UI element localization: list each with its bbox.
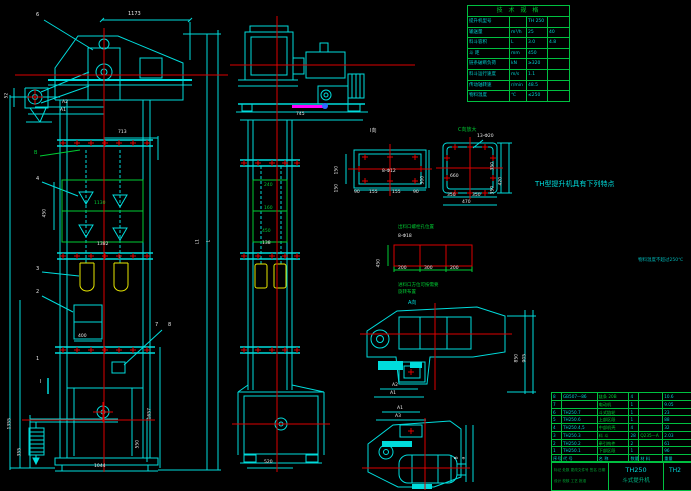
bom-code: TH250.7 [562,409,598,416]
bom-header: 序号 [552,455,562,462]
bom-code: TH250.1 [562,447,598,454]
hole-callout: 8-Φ12 [382,170,396,175]
bom-row: 5 TH250.6 上部区段 1 88 [552,416,691,424]
bom-code: TH250.4,5 [562,424,598,431]
drawing-number: TH2 [669,467,681,474]
bom-qty: 4 [629,424,639,431]
dim-label: 450 [378,259,383,268]
bom-qty: 2 [629,440,639,447]
bom-material [639,401,663,408]
bom-name: 链条 20B [598,393,630,400]
dim-label: 90 [354,191,360,196]
spec-value: 3.0 [527,38,548,48]
bom-item-no: 8 [552,393,562,400]
dim-label: A3 [395,415,401,420]
dim-label: 155 [369,191,378,196]
dim-label: B [456,456,461,459]
bom-item-no: 3 [552,432,562,439]
bom-name: 下部区段 [598,447,630,454]
bom-qty: 1 [629,416,639,423]
bom-name: 电动机 [598,401,630,408]
bom-header: 名 称 [598,455,630,462]
dim-label: 450 [262,230,271,235]
spec-value: ≥320 [527,59,548,69]
spec-param: 链条破断负荷 [468,59,510,69]
aview-note: 进料口方位可按需要 [398,284,439,289]
spec-value [548,17,569,27]
dim-label: 660 [450,175,459,180]
dim-label: 450 [44,209,49,218]
dim-label: 200 [450,267,459,272]
spec-value: ≤250 [527,91,548,102]
cad-sheet: 1173 6 52 A2 A1 B 4 713 450 1130 1382 3 … [0,0,691,491]
signature-row: 设计 校核 工艺 批准 [554,479,586,484]
dim-label: L1 [197,239,202,244]
bom-code: TH250.3 [562,432,598,439]
bom-weight: 88 [663,416,691,423]
bom-weight: 96 [663,447,691,454]
hole-callout: 8-Φ18 [398,235,412,240]
spec-row: 物料温度 ℃ ≤250 [468,91,569,102]
bom-weight: 61 [663,440,691,447]
spec-row: 提升机型号 TH 250 [468,17,569,28]
dim-label: 355 [19,448,24,457]
bom-name: 中部机壳 [598,424,630,431]
dim-label: 240 [264,184,273,189]
bom-name: 牵引构件 [598,440,630,447]
signature-grid: 标记 处数 更改文件号 签名 日期 设计 校核 工艺 批准 [552,463,609,490]
dim-label: 1044 [94,465,105,470]
spec-value [548,70,569,80]
spec-unit: mm [510,49,527,59]
spec-table: 技 术 规 格 提升机型号 TH 250 输送量 m³/h 25 40 料斗容积… [467,5,570,102]
spec-value: 450 [527,49,548,59]
spec-row: 料斗容积 L 3.0 4.8 [468,38,569,49]
spec-param: 提升机型号 [468,17,510,27]
dim-label: 155 [392,191,401,196]
spec-row: 传动轴转速 r/min 48.5 [468,81,569,92]
spec-value [548,59,569,69]
dim-label: 1657 [149,408,154,419]
balloon-4: 4 [36,177,39,182]
bom-item-no: 7 [552,401,562,408]
bom-material [639,393,663,400]
bom-header: 代 号 [562,455,598,462]
spec-row: 链条破断负荷 kN ≥320 [468,59,569,70]
bom-item-no: 5 [552,416,562,423]
bom-qty: 1 [629,409,639,416]
yellow-buckets [80,263,286,291]
dim-label: 160 [264,207,273,212]
spec-unit: kN [510,59,527,69]
outlet-detail-title: 出料口螺栓孔位置 [398,226,434,231]
dim-label: a [463,457,468,460]
spec-table-title: 技 术 规 格 [468,6,569,17]
spec-unit: L [510,38,527,48]
bom-header: 数量 [629,455,639,462]
balloon-7: 7 [155,323,158,328]
spec-value [548,81,569,91]
bom-material [639,447,663,454]
dim-label: 150 [336,166,341,175]
dim-label: 1382 [97,243,108,248]
signature-row: 标记 处数 更改文件号 签名 日期 [554,468,605,473]
aview-note: 旋转布置 [398,291,416,296]
bom-item-no: 6 [552,409,562,416]
dim-label: L [208,240,213,243]
spec-row: 斗 距 mm 450 [468,49,569,60]
dim-label: 350 [472,194,481,199]
spec-row: 输送量 m³/h 25 40 [468,28,569,39]
dim-label: 300 [424,267,433,272]
bom-weight: 32 [663,424,691,431]
dim-label: 850 [516,354,521,363]
bom-material [639,409,663,416]
bom-row: 3 TH250.3 料 斗 28 Q235—A 2.03 [552,432,691,440]
dim-label: A2 [62,101,68,106]
bom-header-row: 序号 代 号 名 称 数量 材 料 重量 [552,455,691,462]
dim-label: 300 [422,176,427,185]
spec-value [548,91,569,102]
spec-value: 25 [527,28,548,38]
bom-code: TH250.6 [562,416,598,423]
dim-label: A1 [60,109,66,114]
spec-unit: ℃ [510,91,527,102]
spec-value: 1.1 [527,70,548,80]
balloon-3: 3 [36,267,39,272]
bom-item-no: 2 [552,440,562,447]
bom-row: 7 电动机 1 9.05 [552,401,691,409]
dim-label: 520 [264,461,273,466]
bom-rows: 8 GB507—86 链条 20B 4 10.6 7 电动机 1 9.05 6 … [552,393,691,455]
drawing-name: 斗式提升机 [609,476,663,484]
dim-label: 150 [336,184,341,193]
dim-label: 90 [413,191,419,196]
bom-row: 4 TH250.4,5 中部机壳 4 32 [552,424,691,432]
bom-weight: 23 [663,409,691,416]
dim-label: 1355 [9,418,14,429]
hole-callout: 13-Φ20 [477,135,494,140]
cyan-linework [10,18,536,487]
model-number: TH250 [609,466,663,474]
bom-qty: 28 [629,432,639,439]
dim-label: 713 [118,131,127,136]
view-label-A: A向 [408,301,416,306]
bom-weight: 2.03 [663,432,691,439]
bom-code: GB507—86 [562,393,598,400]
balloon-1: 1 [36,357,39,362]
bom-qty: 1 [629,447,639,454]
spec-unit: m³/h [510,28,527,38]
balloon-6: 6 [36,13,39,18]
spec-unit: m/s [510,70,527,80]
dim-label: 52 [6,93,11,99]
bom-item-no: 4 [552,424,562,431]
dim-label: H(提升高度) [0,233,1,258]
section-marker: I [40,380,41,385]
dim-label: 420 [500,177,505,186]
spec-value: 48.5 [527,81,548,91]
dim-label: 1130 [94,202,105,207]
dim-label: 138 [262,242,271,247]
bom-row: 2 TH250.2 牵引构件 2 61 [552,440,691,448]
dim-label: 350 [492,162,497,171]
spec-param: 料斗容积 [468,38,510,48]
spec-value: 40 [548,28,569,38]
bom-qty: 4 [629,393,639,400]
spec-rows: 提升机型号 TH 250 输送量 m³/h 25 40 料斗容积 L 3.0 4… [468,17,569,102]
spec-row: 料斗运行速度 m/s 1.1 [468,70,569,81]
dim-label: 470 [462,201,471,206]
bom-name: 斗式链轮 [598,409,630,416]
bom-row: 6 TH250.7 斗式链轮 1 23 [552,409,691,417]
bom-name: 上部区段 [598,416,630,423]
spec-unit: r/min [510,81,527,91]
dim-label: A1 [397,407,403,412]
dim-label: 350 [492,186,497,195]
spec-param: 斗 距 [468,49,510,59]
spec-param: 物料温度 [468,91,510,102]
note-side: 物料温度不超过250℃ [638,259,683,264]
dim-label: A2 [392,384,398,389]
bom-row: 1 TH250.1 下部区段 1 96 [552,447,691,455]
dim-label: 400 [78,335,87,340]
spec-param: 传动轴转速 [468,81,510,91]
bom-weight: 10.6 [663,393,691,400]
bom-qty: 1 [629,401,639,408]
spec-value [548,49,569,59]
bom-table: 8 GB507—86 链条 20B 4 10.6 7 电动机 1 9.05 6 … [551,392,691,462]
view-label-I: Ⅰ向 [370,129,376,134]
bom-material: Q235—A [639,432,663,439]
spec-value: 4.8 [548,38,569,48]
notes-block [528,192,690,384]
dim-label: 200 [398,267,407,272]
drawing-number-cell: TH2 [664,463,691,490]
bom-code [562,401,598,408]
bom-material [639,424,663,431]
balloon-8: 8 [168,323,171,328]
dim-label: 745 [296,113,305,118]
bom-material [639,440,663,447]
notes-title: TH型提升机具有下列特点 [535,181,615,188]
view-label-C: C向放大 [458,128,477,133]
bom-material [639,416,663,423]
spec-param: 输送量 [468,28,510,38]
bom-header: 材 料 [639,455,663,462]
dim-label: 1173 [128,12,141,17]
bom-code: TH250.2 [562,440,598,447]
balloon-2: 2 [36,290,39,295]
title-cell: TH250 斗式提升机 [609,463,664,490]
bom-item-no: 1 [552,447,562,454]
dim-label: 550 [137,440,142,449]
dim-label: 350 [447,194,456,199]
spec-value: TH 250 [527,17,548,27]
bom-name: 料 斗 [598,432,630,439]
bom-weight: 9.05 [663,401,691,408]
bom-row: 8 GB507—86 链条 20B 4 10.6 [552,393,691,401]
title-block: 标记 处数 更改文件号 签名 日期 设计 校核 工艺 批准 TH250 斗式提升… [551,462,691,491]
bom-header: 重量 [663,455,691,462]
spec-param: 料斗运行速度 [468,70,510,80]
balloon-B: B [34,151,37,156]
dim-label: A1 [390,392,396,397]
spec-unit [510,17,527,27]
